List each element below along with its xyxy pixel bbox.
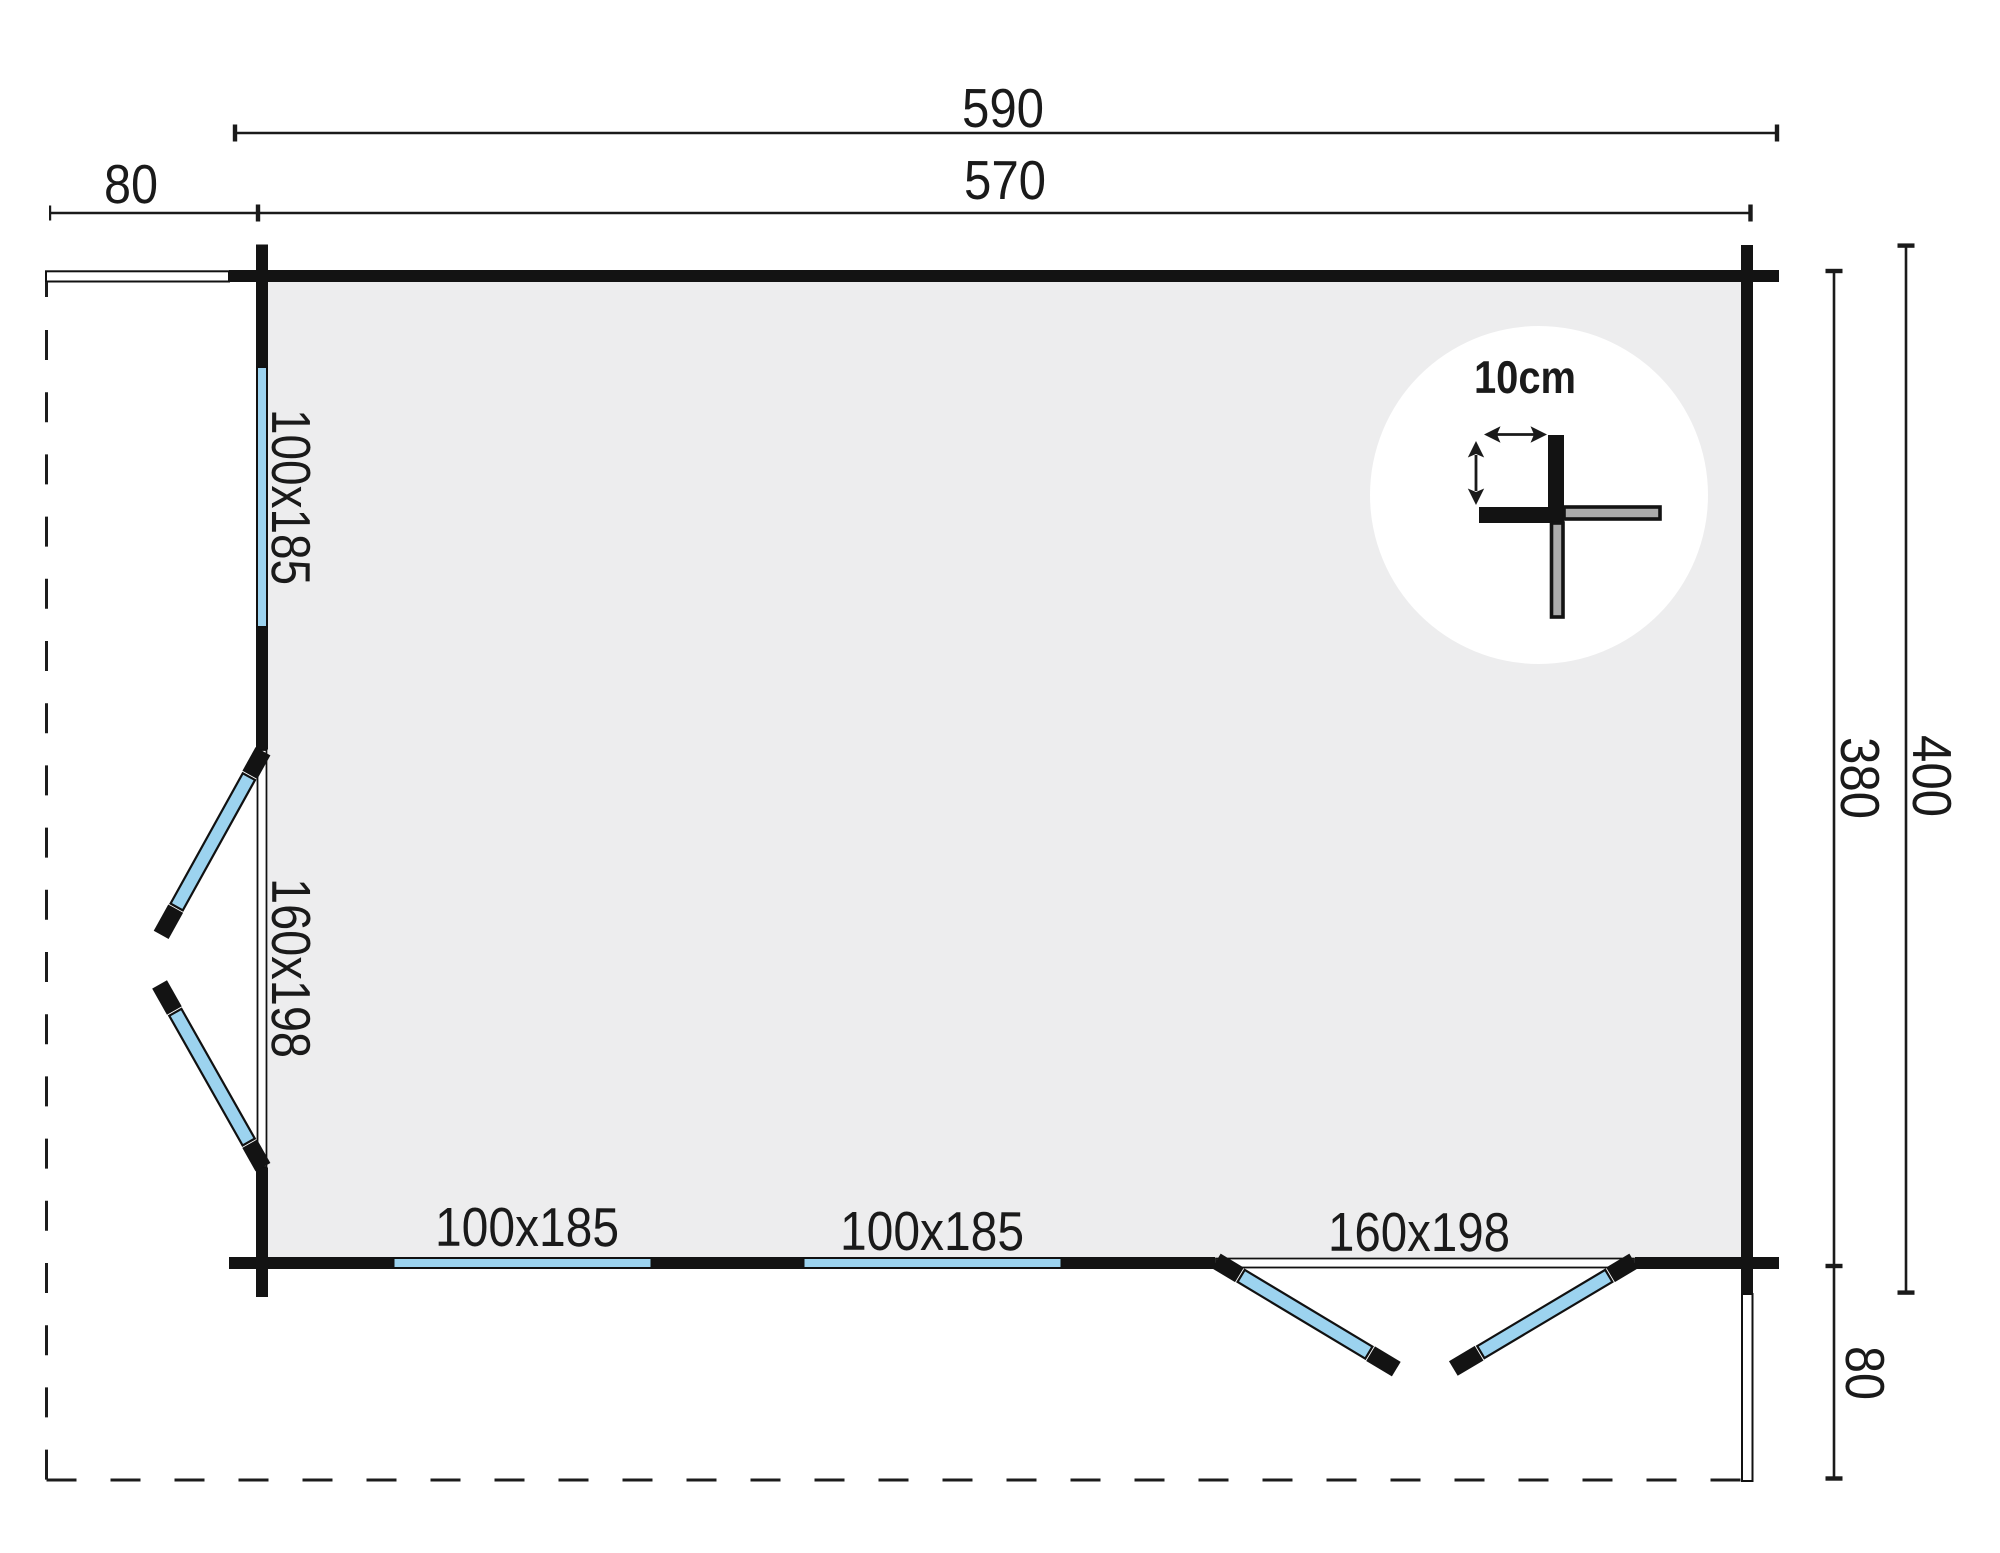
svg-text:10cm: 10cm [1474,351,1576,403]
svg-text:100x185: 100x185 [840,1200,1024,1262]
svg-text:100x185: 100x185 [435,1196,619,1258]
svg-text:80: 80 [1834,1346,1896,1400]
svg-text:80: 80 [104,153,158,215]
svg-text:400: 400 [1901,735,1963,817]
svg-text:160x198: 160x198 [260,878,322,1058]
svg-text:160x198: 160x198 [1328,1201,1510,1263]
svg-text:100x185: 100x185 [260,409,322,585]
svg-text:380: 380 [1829,737,1891,819]
svg-text:570: 570 [964,149,1046,211]
svg-text:590: 590 [962,77,1044,139]
